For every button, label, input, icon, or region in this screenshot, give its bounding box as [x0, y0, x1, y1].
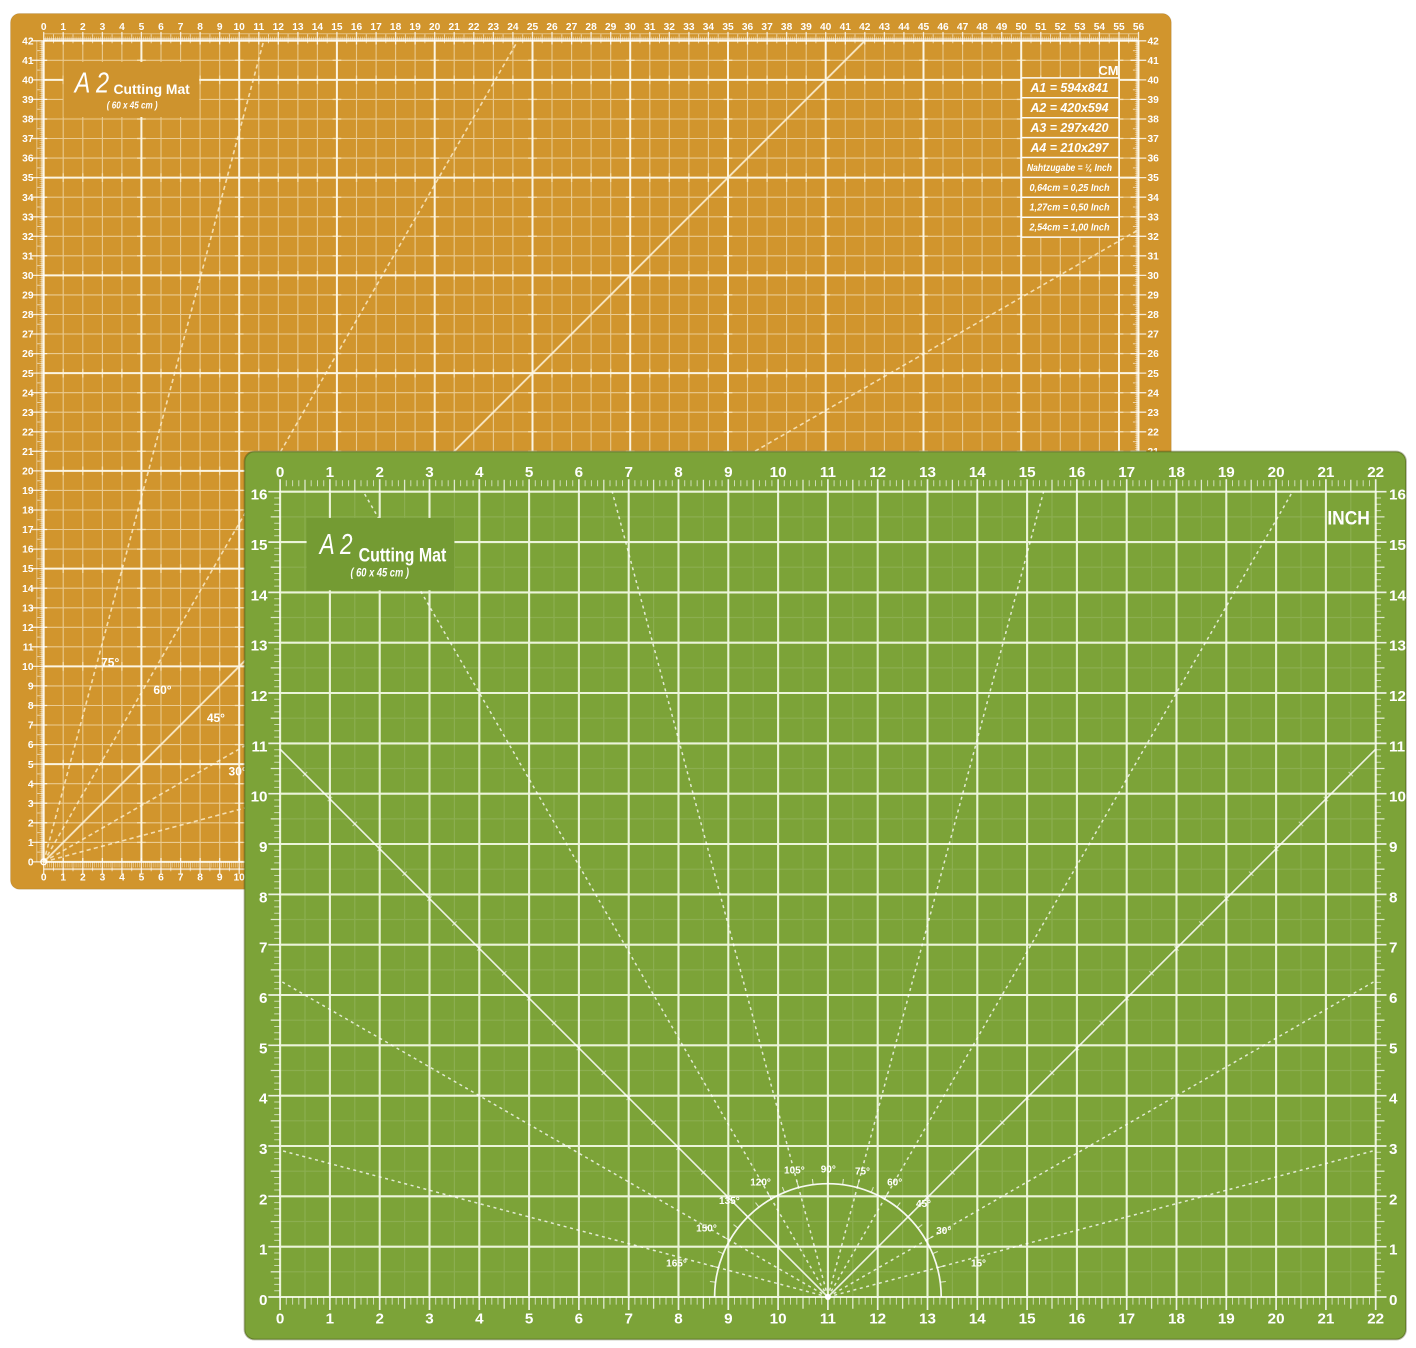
svg-text:CM: CM: [1098, 63, 1118, 78]
svg-text:6: 6: [1389, 990, 1397, 1007]
svg-text:22: 22: [22, 427, 34, 438]
svg-text:32: 32: [1148, 232, 1160, 243]
svg-text:18: 18: [1168, 464, 1185, 481]
svg-text:30: 30: [22, 271, 34, 282]
svg-text:35: 35: [1148, 173, 1160, 184]
svg-text:27: 27: [22, 330, 34, 341]
svg-text:9: 9: [217, 873, 223, 884]
svg-text:A2 = 420x594: A2 = 420x594: [1030, 101, 1109, 115]
svg-text:8: 8: [197, 22, 203, 33]
svg-text:21: 21: [1317, 464, 1334, 481]
svg-text:17: 17: [1118, 464, 1135, 481]
svg-text:17: 17: [22, 525, 34, 536]
svg-text:9: 9: [1389, 839, 1397, 856]
svg-text:29: 29: [605, 22, 617, 33]
svg-text:35: 35: [722, 22, 734, 33]
svg-text:26: 26: [546, 22, 558, 33]
svg-text:13: 13: [919, 1311, 936, 1328]
svg-text:10: 10: [234, 22, 246, 33]
svg-text:10: 10: [234, 873, 246, 884]
svg-text:20: 20: [1268, 1311, 1285, 1328]
svg-text:11: 11: [820, 1311, 837, 1328]
svg-text:8: 8: [674, 464, 682, 481]
svg-text:0: 0: [41, 873, 47, 884]
svg-text:3: 3: [425, 464, 433, 481]
svg-text:41: 41: [840, 22, 852, 33]
svg-text:16: 16: [22, 545, 34, 556]
svg-text:8: 8: [197, 873, 203, 884]
svg-text:16: 16: [1068, 1311, 1085, 1328]
svg-text:A1 = 594x841: A1 = 594x841: [1030, 81, 1109, 95]
svg-text:2: 2: [1389, 1191, 1397, 1208]
svg-text:4: 4: [1389, 1091, 1398, 1108]
svg-text:30°: 30°: [936, 1226, 951, 1237]
svg-text:32: 32: [22, 232, 34, 243]
svg-text:21: 21: [22, 447, 34, 458]
svg-text:22: 22: [1367, 1311, 1384, 1328]
svg-text:51: 51: [1035, 22, 1047, 33]
svg-text:31: 31: [1148, 251, 1160, 262]
svg-text:2,54cm = 1,00 Inch: 2,54cm = 1,00 Inch: [1029, 223, 1110, 234]
svg-text:25: 25: [1148, 369, 1160, 380]
svg-text:14: 14: [1389, 587, 1406, 604]
svg-text:4: 4: [259, 1091, 268, 1108]
svg-text:41: 41: [22, 56, 34, 67]
svg-text:13: 13: [1389, 638, 1406, 655]
svg-text:17: 17: [1118, 1311, 1135, 1328]
svg-text:17: 17: [370, 22, 382, 33]
svg-text:12: 12: [251, 688, 268, 705]
svg-text:4: 4: [28, 779, 34, 790]
svg-text:43: 43: [879, 22, 891, 33]
svg-text:2: 2: [375, 1311, 383, 1328]
svg-text:8: 8: [28, 701, 34, 712]
svg-text:A 2: A 2: [318, 529, 353, 561]
svg-text:75°: 75°: [101, 655, 119, 669]
svg-text:18: 18: [22, 506, 34, 517]
svg-text:11: 11: [1389, 738, 1406, 755]
svg-text:0: 0: [276, 464, 284, 481]
svg-text:42: 42: [22, 36, 34, 47]
svg-text:7: 7: [1389, 940, 1397, 957]
svg-text:15: 15: [1019, 464, 1036, 481]
svg-text:34: 34: [1148, 193, 1160, 204]
svg-text:5: 5: [259, 1040, 268, 1057]
svg-text:150°: 150°: [696, 1224, 717, 1235]
svg-text:13: 13: [22, 603, 34, 614]
svg-text:29: 29: [22, 291, 34, 302]
svg-text:4: 4: [119, 22, 125, 33]
svg-text:1: 1: [60, 22, 66, 33]
svg-text:60°: 60°: [887, 1178, 902, 1189]
svg-text:6: 6: [575, 1311, 583, 1328]
svg-text:39: 39: [22, 95, 34, 106]
svg-text:35: 35: [22, 173, 34, 184]
svg-text:9: 9: [724, 464, 732, 481]
svg-text:A3 = 297x420: A3 = 297x420: [1030, 121, 1109, 135]
svg-text:7: 7: [259, 940, 267, 957]
svg-text:7: 7: [624, 464, 632, 481]
svg-text:0: 0: [28, 858, 34, 869]
svg-text:14: 14: [969, 1311, 986, 1328]
svg-text:23: 23: [488, 22, 500, 33]
svg-text:0: 0: [276, 1311, 284, 1328]
svg-text:24: 24: [1148, 388, 1160, 399]
svg-text:3: 3: [259, 1141, 267, 1158]
svg-text:16: 16: [351, 22, 363, 33]
svg-text:29: 29: [1148, 291, 1160, 302]
svg-text:6: 6: [158, 22, 164, 33]
svg-text:36: 36: [742, 22, 754, 33]
svg-text:135°: 135°: [719, 1196, 740, 1207]
svg-text:4: 4: [475, 464, 484, 481]
svg-text:36: 36: [1148, 154, 1160, 165]
svg-text:26: 26: [1148, 349, 1160, 360]
svg-text:5: 5: [1389, 1040, 1398, 1057]
svg-text:24: 24: [507, 22, 519, 33]
svg-text:15: 15: [1389, 537, 1406, 554]
svg-text:A4 = 210x297: A4 = 210x297: [1030, 141, 1110, 155]
svg-text:1: 1: [28, 838, 34, 849]
svg-text:1: 1: [60, 873, 66, 884]
svg-text:9: 9: [217, 22, 223, 33]
svg-text:45°: 45°: [207, 711, 225, 725]
svg-text:54: 54: [1094, 22, 1106, 33]
svg-text:1: 1: [259, 1242, 268, 1259]
svg-text:32: 32: [664, 22, 676, 33]
svg-text:4: 4: [119, 873, 125, 884]
svg-text:28: 28: [585, 22, 597, 33]
svg-text:46: 46: [937, 22, 949, 33]
svg-text:37: 37: [22, 134, 34, 145]
svg-text:37: 37: [1148, 134, 1160, 145]
svg-text:14: 14: [969, 464, 986, 481]
svg-text:3: 3: [100, 873, 106, 884]
svg-text:75°: 75°: [855, 1167, 870, 1178]
svg-text:33: 33: [683, 22, 695, 33]
svg-text:40: 40: [22, 76, 34, 87]
svg-text:18: 18: [1168, 1311, 1185, 1328]
svg-text:23: 23: [1148, 408, 1160, 419]
svg-text:7: 7: [178, 22, 184, 33]
svg-text:31: 31: [644, 22, 656, 33]
svg-text:0: 0: [259, 1292, 267, 1309]
svg-text:10: 10: [770, 464, 787, 481]
svg-text:56: 56: [1133, 22, 1145, 33]
svg-text:Cutting Mat: Cutting Mat: [114, 81, 191, 97]
svg-text:14: 14: [312, 22, 324, 33]
svg-text:0: 0: [1389, 1292, 1397, 1309]
svg-text:Cutting Mat: Cutting Mat: [359, 545, 447, 567]
svg-text:2: 2: [259, 1191, 267, 1208]
svg-text:6: 6: [575, 464, 583, 481]
svg-text:15°: 15°: [971, 1259, 986, 1270]
svg-text:22: 22: [468, 22, 480, 33]
svg-text:11: 11: [253, 22, 264, 33]
svg-text:15: 15: [251, 537, 268, 554]
svg-text:2: 2: [80, 873, 86, 884]
svg-text:2: 2: [375, 464, 383, 481]
svg-text:A 2: A 2: [73, 68, 109, 100]
svg-text:38: 38: [1148, 115, 1160, 126]
svg-text:12: 12: [273, 22, 285, 33]
svg-text:20: 20: [22, 467, 34, 478]
svg-text:2: 2: [80, 22, 86, 33]
svg-text:16: 16: [251, 487, 268, 504]
svg-text:6: 6: [259, 990, 267, 1007]
svg-text:40: 40: [820, 22, 832, 33]
svg-text:10: 10: [251, 789, 268, 806]
svg-text:7: 7: [28, 721, 34, 732]
svg-text:18: 18: [390, 22, 402, 33]
svg-text:20: 20: [1268, 464, 1285, 481]
svg-text:42: 42: [1148, 36, 1160, 47]
svg-text:34: 34: [703, 22, 715, 33]
svg-text:39: 39: [1148, 95, 1160, 106]
svg-text:38: 38: [22, 115, 34, 126]
svg-text:8: 8: [1389, 889, 1397, 906]
svg-text:37: 37: [761, 22, 773, 33]
svg-text:19: 19: [409, 22, 421, 33]
svg-text:50: 50: [1016, 22, 1028, 33]
svg-text:19: 19: [22, 486, 34, 497]
svg-text:44: 44: [898, 22, 910, 33]
svg-text:25: 25: [22, 369, 34, 380]
svg-text:40: 40: [1148, 76, 1160, 87]
svg-text:5: 5: [139, 22, 145, 33]
svg-text:5: 5: [525, 464, 534, 481]
svg-text:5: 5: [525, 1311, 534, 1328]
svg-text:120°: 120°: [750, 1178, 771, 1189]
svg-text:60°: 60°: [153, 683, 171, 697]
svg-text:16: 16: [1068, 464, 1085, 481]
svg-text:( 60 x 45 cm ): ( 60 x 45 cm ): [350, 565, 409, 579]
svg-text:105°: 105°: [784, 1166, 805, 1177]
svg-text:55: 55: [1113, 22, 1125, 33]
svg-text:1: 1: [326, 464, 335, 481]
svg-text:8: 8: [674, 1311, 682, 1328]
svg-text:10: 10: [22, 662, 34, 673]
svg-text:21: 21: [449, 22, 461, 33]
svg-text:7: 7: [624, 1311, 632, 1328]
svg-text:19: 19: [1218, 1311, 1235, 1328]
svg-text:33: 33: [1148, 212, 1160, 223]
svg-text:12: 12: [1389, 688, 1406, 705]
svg-text:14: 14: [251, 587, 268, 604]
svg-text:11: 11: [820, 464, 837, 481]
svg-text:5: 5: [28, 760, 34, 771]
svg-text:6: 6: [158, 873, 164, 884]
svg-text:20: 20: [429, 22, 441, 33]
svg-text:0: 0: [41, 22, 47, 33]
svg-text:12: 12: [22, 623, 34, 634]
svg-text:9: 9: [28, 682, 34, 693]
svg-text:28: 28: [1148, 310, 1160, 321]
svg-text:22: 22: [1367, 464, 1384, 481]
svg-text:3: 3: [100, 22, 106, 33]
svg-text:42: 42: [859, 22, 871, 33]
svg-text:12: 12: [869, 1311, 886, 1328]
svg-text:30: 30: [625, 22, 637, 33]
svg-text:11: 11: [251, 738, 268, 755]
svg-text:2: 2: [28, 818, 34, 829]
svg-text:12: 12: [869, 464, 886, 481]
svg-text:39: 39: [801, 22, 813, 33]
svg-text:15: 15: [22, 564, 34, 575]
svg-text:13: 13: [292, 22, 304, 33]
svg-text:10: 10: [770, 1311, 787, 1328]
svg-text:33: 33: [22, 212, 34, 223]
svg-text:1,27cm = 0,50 Inch: 1,27cm = 0,50 Inch: [1030, 203, 1110, 214]
svg-text:52: 52: [1055, 22, 1067, 33]
svg-text:26: 26: [22, 349, 34, 360]
svg-text:11: 11: [23, 642, 34, 653]
svg-text:16: 16: [1389, 487, 1406, 504]
svg-text:4: 4: [475, 1311, 484, 1328]
svg-text:14: 14: [22, 584, 34, 595]
svg-text:5: 5: [139, 873, 145, 884]
svg-text:45: 45: [918, 22, 930, 33]
svg-text:0,64cm = 0,25 Inch: 0,64cm = 0,25 Inch: [1030, 183, 1110, 194]
svg-text:25: 25: [527, 22, 539, 33]
svg-text:13: 13: [251, 638, 268, 655]
svg-text:34: 34: [22, 193, 34, 204]
svg-text:3: 3: [28, 799, 34, 810]
svg-text:3: 3: [425, 1311, 433, 1328]
svg-text:27: 27: [566, 22, 578, 33]
svg-text:Nahtzugabe = ¼ Inch: Nahtzugabe = ¼ Inch: [1027, 163, 1112, 174]
svg-text:28: 28: [22, 310, 34, 321]
svg-text:15: 15: [1019, 1311, 1036, 1328]
svg-text:19: 19: [1218, 464, 1235, 481]
svg-text:7: 7: [178, 873, 184, 884]
svg-text:6: 6: [28, 740, 34, 751]
svg-text:10: 10: [1389, 789, 1406, 806]
svg-text:41: 41: [1148, 56, 1160, 67]
svg-text:49: 49: [996, 22, 1008, 33]
svg-text:( 60 x 45 cm ): ( 60 x 45 cm ): [107, 100, 158, 111]
svg-text:27: 27: [1148, 330, 1160, 341]
svg-text:47: 47: [957, 22, 969, 33]
svg-text:38: 38: [781, 22, 793, 33]
svg-text:30: 30: [1148, 271, 1160, 282]
svg-text:9: 9: [724, 1311, 732, 1328]
svg-text:8: 8: [259, 889, 267, 906]
svg-text:45°: 45°: [916, 1199, 931, 1210]
svg-text:31: 31: [22, 251, 34, 262]
svg-text:165°: 165°: [666, 1259, 687, 1270]
svg-text:15: 15: [331, 22, 343, 33]
svg-text:13: 13: [919, 464, 936, 481]
svg-text:3: 3: [1389, 1141, 1397, 1158]
svg-text:90°: 90°: [821, 1165, 836, 1176]
svg-text:53: 53: [1074, 22, 1086, 33]
svg-text:48: 48: [976, 22, 988, 33]
svg-text:INCH: INCH: [1327, 507, 1370, 529]
svg-text:23: 23: [22, 408, 34, 419]
svg-text:21: 21: [1317, 1311, 1334, 1328]
svg-text:22: 22: [1148, 427, 1160, 438]
svg-text:1: 1: [326, 1311, 335, 1328]
svg-text:1: 1: [1389, 1242, 1398, 1259]
svg-text:24: 24: [22, 388, 34, 399]
svg-text:36: 36: [22, 154, 34, 165]
svg-text:9: 9: [259, 839, 267, 856]
